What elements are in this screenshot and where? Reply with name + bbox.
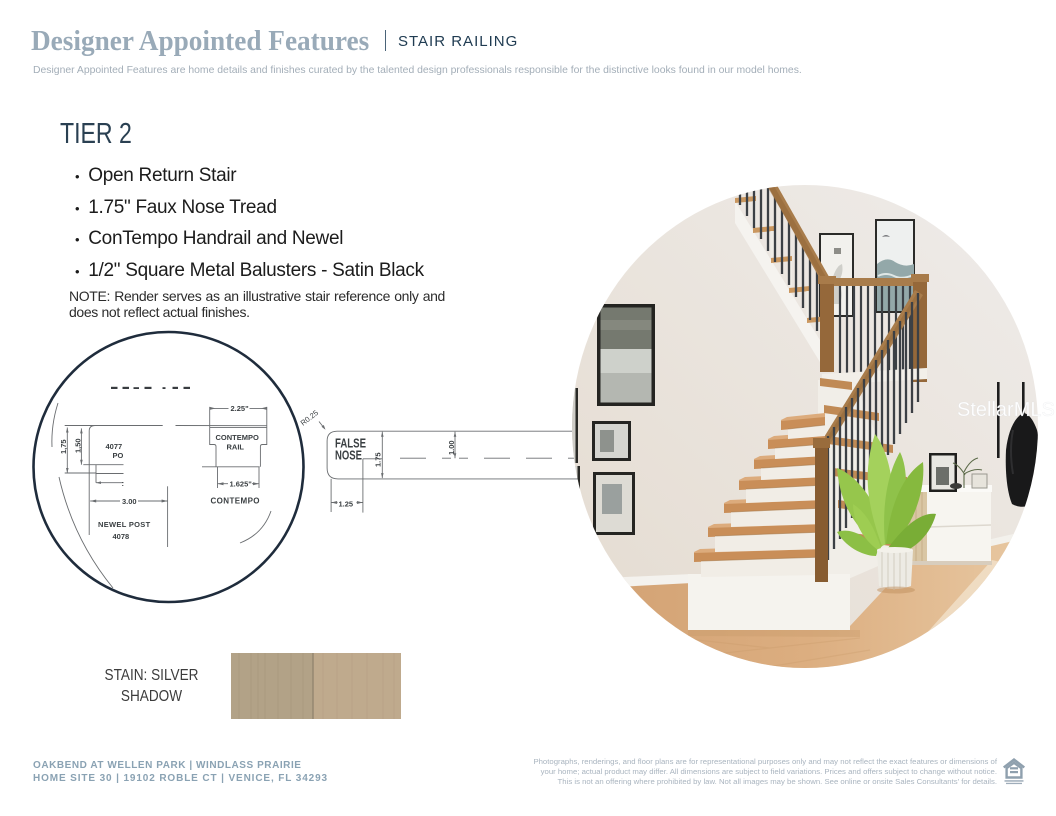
- svg-text:1.625": 1.625": [230, 479, 253, 488]
- svg-text:4078: 4078: [113, 532, 130, 541]
- svg-text:NOSE: NOSE: [335, 448, 362, 463]
- svg-text:CONTEMPO: CONTEMPO: [216, 433, 260, 442]
- svg-text:4077: 4077: [106, 442, 123, 451]
- svg-text:R0.25: R0.25: [299, 408, 320, 427]
- svg-text:1,75: 1,75: [59, 439, 68, 454]
- svg-text:2.25": 2.25": [231, 404, 250, 413]
- svg-text:1.00: 1.00: [447, 440, 456, 455]
- svg-text::: :: [122, 479, 125, 488]
- svg-text:1,50: 1,50: [74, 438, 83, 453]
- svg-text:CONTEMPO: CONTEMPO: [211, 497, 260, 506]
- svg-text:PO: PO: [113, 451, 124, 460]
- svg-text:1.25: 1.25: [339, 500, 354, 509]
- svg-text:NEWEL POST: NEWEL POST: [98, 520, 151, 529]
- svg-text:RAIL: RAIL: [227, 443, 245, 452]
- svg-text:StellarMLS: StellarMLS: [957, 399, 1055, 421]
- svg-text:1.75: 1.75: [374, 452, 383, 467]
- svg-text:3.00: 3.00: [122, 497, 137, 506]
